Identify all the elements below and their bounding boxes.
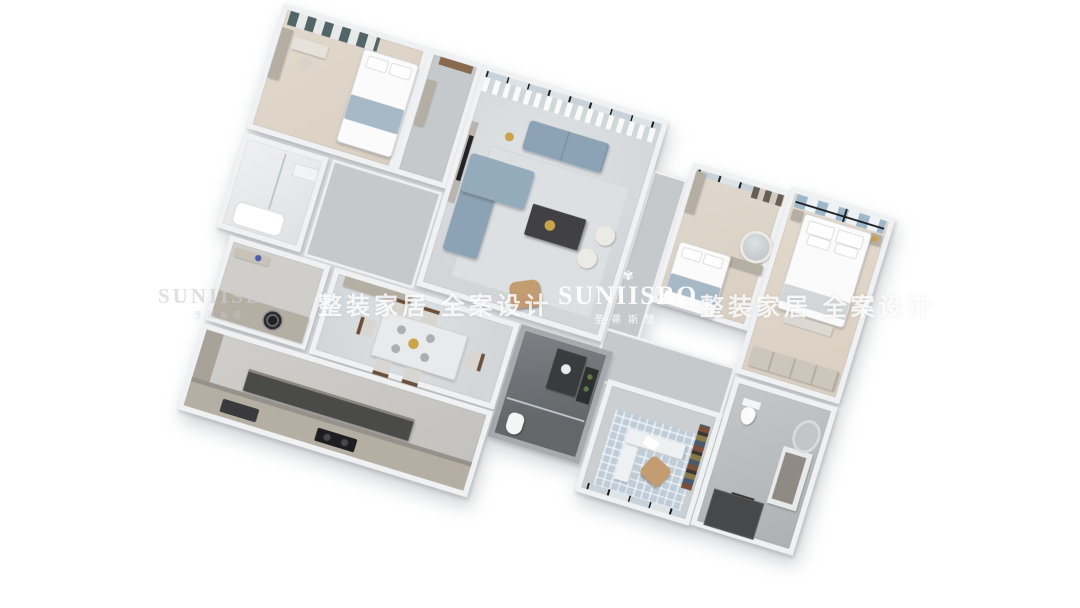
brand-chinese-name: 圣蒂斯堡	[558, 311, 698, 326]
watermark-brand: ✾ SUNIISBO 圣蒂斯堡	[558, 270, 698, 326]
nightstand	[790, 209, 803, 222]
bathtub	[230, 199, 287, 238]
toilet	[504, 411, 526, 436]
pillow	[681, 247, 703, 263]
render-canvas: SUNIISBO 圣蒂斯堡 整装家居 全案设计 ✾ SUNIISBO 圣蒂斯堡 …	[0, 0, 1080, 608]
watermark-tagline: 整装家居 全案设计	[318, 286, 553, 321]
pillow	[365, 55, 389, 73]
wardrobe	[684, 171, 706, 215]
brand-chinese-name: 圣蒂斯堡	[158, 310, 282, 321]
desk-chair	[298, 56, 314, 72]
shelf	[233, 247, 270, 266]
brand-wordmark: SUNIISBO	[558, 282, 698, 310]
watermark-tagline: 整装家居 全案设计	[700, 287, 935, 322]
dining-chair	[464, 350, 485, 372]
shower-floor	[703, 488, 764, 539]
desk	[291, 36, 329, 59]
wardrobe	[267, 27, 293, 80]
pillow	[388, 62, 412, 80]
window-wall	[485, 71, 662, 130]
curtain-dark	[751, 186, 785, 207]
entry-door	[438, 57, 473, 75]
washbasin	[291, 163, 319, 183]
pillow	[702, 253, 724, 269]
watermark-brand-faint: SUNIISBO 圣蒂斯堡	[158, 284, 282, 321]
blanket-blue	[344, 94, 405, 134]
floor-lamp-gold	[504, 131, 515, 142]
brand-wordmark: SUNIISBO	[158, 284, 282, 309]
